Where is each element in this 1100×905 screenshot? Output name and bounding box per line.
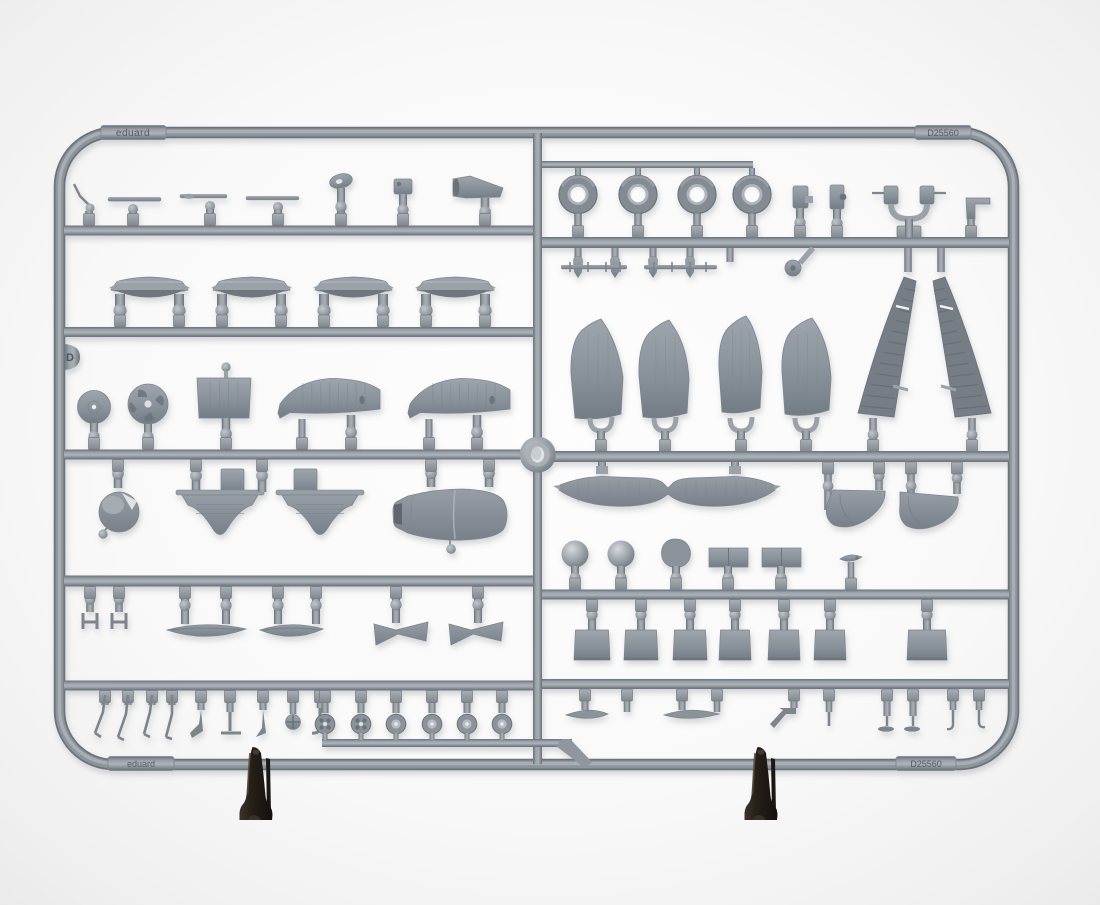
svg-text:D: D — [66, 352, 74, 364]
svg-text:eduard: eduard — [127, 759, 155, 769]
svg-text:D25560: D25560 — [910, 759, 942, 769]
svg-text:D25560: D25560 — [927, 128, 959, 138]
svg-text:eduard: eduard — [116, 128, 150, 139]
